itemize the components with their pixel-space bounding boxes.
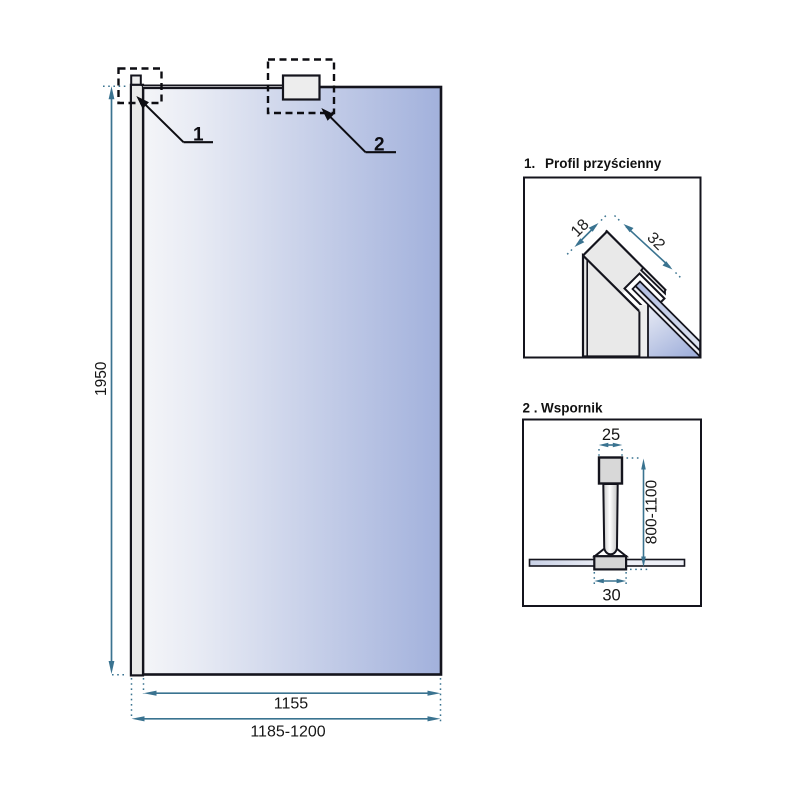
svg-text:1.: 1. [524,156,535,171]
svg-text:1155: 1155 [274,696,309,713]
svg-text:1: 1 [193,125,204,146]
svg-text:30: 30 [602,587,620,605]
svg-text:800-1100: 800-1100 [644,479,661,544]
svg-text:25: 25 [602,426,620,444]
svg-text:1185-1200: 1185-1200 [250,723,325,740]
svg-text:Wspornik: Wspornik [541,401,603,416]
svg-text:2: 2 [374,135,385,156]
svg-text:2 .: 2 . [523,401,538,416]
svg-text:1950: 1950 [93,361,110,396]
svg-text:Profil przyścienny: Profil przyścienny [545,156,662,171]
